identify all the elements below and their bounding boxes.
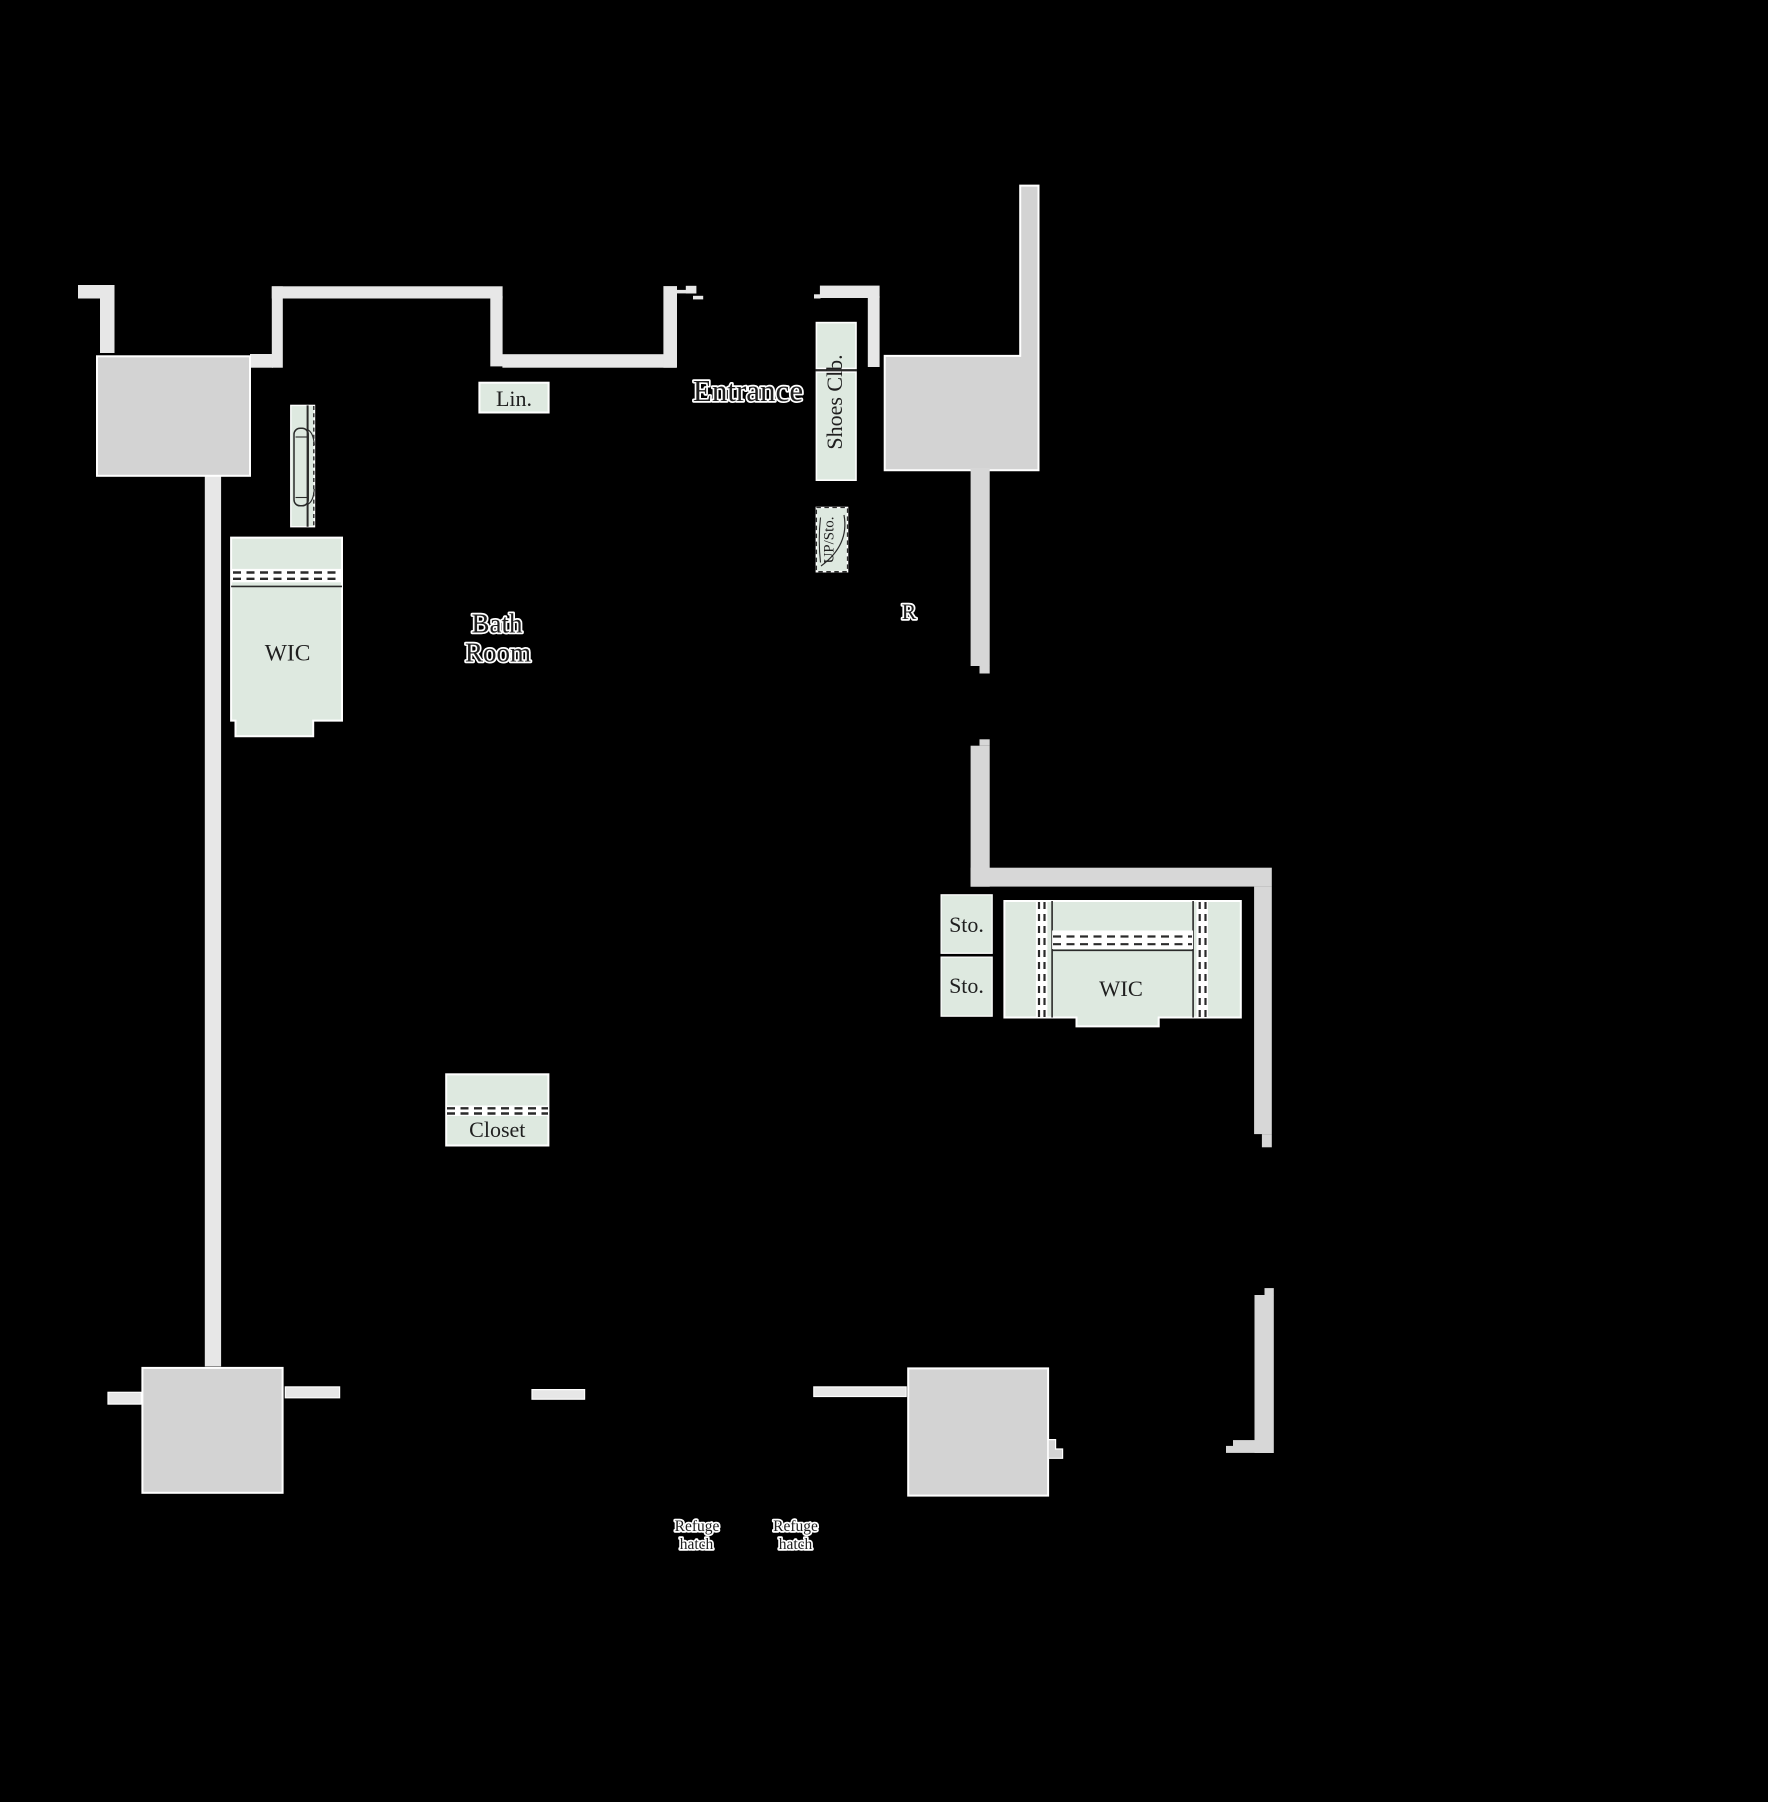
svg-text:WIC: WIC — [1099, 976, 1143, 1001]
svg-text:Closet: Closet — [469, 1117, 525, 1142]
svg-text:Bath: Bath — [472, 609, 523, 639]
svg-text:Refuge: Refuge — [773, 1518, 818, 1535]
svg-text:hatch: hatch — [680, 1536, 714, 1553]
svg-text:Sto.: Sto. — [949, 912, 984, 937]
svg-text:Refuge: Refuge — [675, 1518, 720, 1535]
svg-text:WIC: WIC — [265, 641, 311, 667]
svg-text:Lin.: Lin. — [496, 386, 532, 411]
svg-text:hatch: hatch — [779, 1536, 813, 1553]
svg-text:Entrance: Entrance — [693, 373, 803, 408]
svg-text:Room: Room — [465, 638, 531, 668]
svg-text:Shoes Clb.: Shoes Clb. — [822, 354, 847, 449]
svg-text:R: R — [902, 599, 917, 624]
svg-text:Sto.: Sto. — [949, 973, 984, 998]
svg-text:UP/Sto.: UP/Sto. — [822, 516, 838, 563]
